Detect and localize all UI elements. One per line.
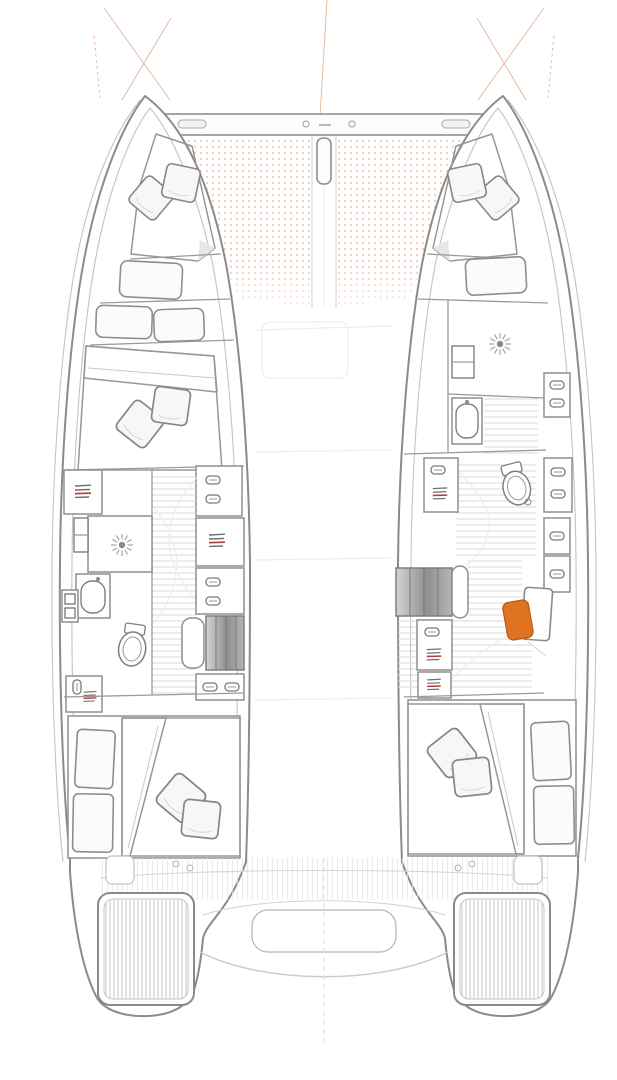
port-steps: [206, 616, 244, 670]
port-aft-cabin: [68, 716, 240, 858]
starboard-companionway: [396, 566, 468, 618]
beam-fitting-icon: [303, 121, 309, 127]
transom-steps-starboard: [454, 893, 550, 1005]
port-seat: [182, 618, 204, 668]
starboard-aft-cabin: [408, 700, 576, 856]
pillow-icon: [452, 757, 492, 797]
starboard-locker-mid2: [544, 556, 570, 592]
port-cabinet-mid: [196, 568, 244, 614]
starboard-step-cap: [452, 566, 468, 618]
beam-slot-starboard: [442, 120, 470, 128]
drawer-handle-icon: [425, 628, 439, 636]
drawer-handle-icon: [551, 490, 565, 498]
drawer-handle-icon: [225, 683, 239, 691]
drawer-handle-icon: [551, 468, 565, 476]
transom-steps-port: [98, 893, 194, 1005]
transom-hatch-starboard: [514, 856, 542, 884]
drawer-handle-icon: [206, 495, 220, 503]
transom-hatch-port: [106, 856, 134, 884]
pillow-icon: [447, 163, 487, 203]
drawer-handle-icon: [550, 399, 564, 407]
starboard-locker-mid1: [544, 518, 570, 554]
starboard-locker-right: [544, 458, 572, 512]
catamaran-floor-plan: [0, 0, 617, 1080]
port-cabinet-top: [196, 466, 242, 516]
drawer-handle-icon: [550, 532, 564, 540]
port-washbasin: [76, 574, 110, 618]
rigging-guide-lines: [94, 0, 554, 116]
starboard-locker-left: [424, 458, 458, 512]
port-aft-locker-left: [66, 676, 102, 712]
starboard-locker-aft-left: [417, 620, 452, 670]
pillow-icon: [161, 163, 201, 203]
pillow-icon: [181, 799, 221, 839]
port-cabinet-bottom: [196, 674, 244, 700]
drawer-handle-icon: [206, 476, 220, 484]
aft-platform-edge: [200, 952, 448, 977]
port-wardrobe: [64, 470, 102, 514]
drawer-handle-icon: [550, 570, 564, 578]
port-companionway: [182, 616, 244, 670]
drawer-handle-icon: [203, 683, 217, 691]
saloon-ghost: [255, 322, 393, 700]
drawer-handle-icon: [73, 680, 81, 694]
drawer-handle-icon: [431, 466, 445, 474]
starboard-locker-aft-left2: [418, 672, 451, 698]
stern-area: [98, 856, 550, 1045]
beam-slot-port: [178, 120, 206, 128]
bowsprit-fitting: [317, 138, 331, 184]
drawer-handle-icon: [206, 597, 220, 605]
drawer-handle-icon: [206, 578, 220, 586]
starboard-washbasin: [452, 398, 482, 444]
pillow-icon: [151, 386, 191, 426]
port-tall-cabinet: [196, 518, 244, 566]
beam-fitting-icon: [349, 121, 355, 127]
drawer-handle-icon: [550, 381, 564, 389]
port-side-locker: [62, 590, 78, 622]
starboard-side-locker-top: [544, 373, 570, 417]
starboard-guest-cushion: [465, 256, 527, 295]
floor-plan-canvas: [0, 0, 617, 1080]
